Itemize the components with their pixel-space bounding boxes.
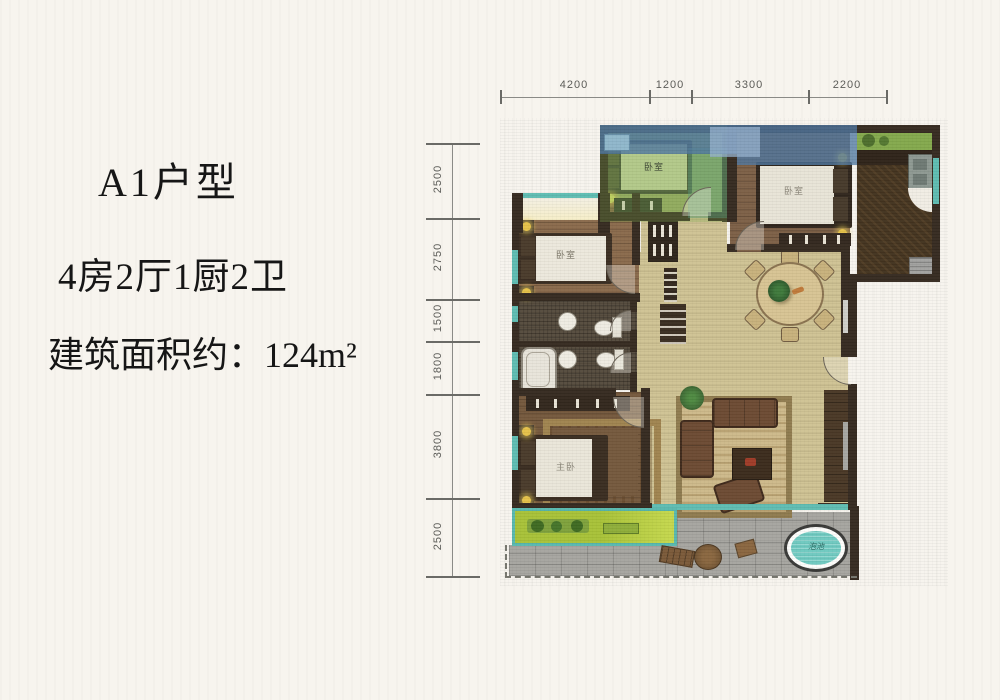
floorplan-page: A1户型 4房2厅1厨2卫 建筑面积约：124m² 4200 1200 3300…: [0, 0, 1000, 700]
sofa-chaise: [680, 420, 714, 478]
dresser-knob: [536, 399, 539, 408]
kitchen-plant: [879, 136, 889, 146]
hanger: [669, 244, 672, 256]
room-label-bedroom-top: 卧室: [644, 160, 664, 173]
dining-chair: [781, 327, 799, 342]
shrub: [531, 520, 544, 532]
bay-window: [522, 197, 600, 220]
bed-pillow: [521, 470, 535, 494]
wall: [630, 372, 637, 392]
hot-tub-label: 泡池: [787, 541, 845, 552]
floor-plan: 泡池 卧室 卧室 卧室 主卧: [0, 0, 1000, 700]
dresser-knob: [596, 399, 599, 408]
sink-basin: [913, 159, 927, 170]
linen-cabinet: [660, 304, 686, 344]
wall: [517, 341, 637, 347]
window: [512, 352, 518, 380]
wall: [850, 506, 859, 580]
terrace-dashed-edge: [505, 545, 507, 578]
room-label-bedroom-master: 主卧: [556, 460, 576, 473]
room-label-bedroom-right: 卧室: [784, 184, 804, 197]
sink: [558, 350, 577, 369]
wall-niche: [843, 300, 848, 333]
hanger: [661, 244, 664, 256]
floor-plant: [680, 386, 704, 410]
hot-tub: 泡池: [784, 524, 848, 572]
shrub: [551, 521, 562, 532]
sink: [558, 312, 577, 331]
hanger: [661, 225, 664, 237]
window: [512, 250, 518, 284]
bed-pillow: [833, 169, 848, 193]
terrace-floor: [509, 545, 677, 576]
bed-pillow: [521, 237, 535, 256]
hanger: [669, 225, 672, 237]
dresser-knob: [789, 235, 792, 244]
hall-cabinet: [664, 268, 677, 302]
table-plant: [768, 280, 790, 302]
wall: [761, 244, 850, 252]
bed-pillow: [521, 260, 535, 279]
hanger: [653, 225, 656, 237]
window: [512, 436, 518, 470]
room-label-bedroom-left: 卧室: [556, 248, 576, 261]
window: [512, 306, 518, 322]
window-block: [604, 134, 630, 151]
bed-pillow: [521, 441, 535, 465]
hanger: [653, 244, 656, 256]
dresser-knob: [576, 399, 579, 408]
kitchen-plant: [862, 134, 875, 147]
wall: [512, 293, 640, 301]
terrace-dashed-edge: [505, 576, 857, 578]
terrace-table: [694, 544, 722, 570]
wall: [512, 193, 523, 233]
sofa: [712, 398, 778, 428]
dining-table: [756, 262, 824, 326]
dresser-knob: [837, 235, 840, 244]
shrub: [571, 520, 583, 532]
window: [933, 158, 939, 204]
dresser-knob: [805, 235, 808, 244]
sink-basin: [913, 174, 927, 185]
dresser-knob: [554, 399, 557, 408]
kitchen-sink: [908, 154, 934, 190]
bathtub-inner: [526, 352, 550, 387]
sliding-door: [652, 504, 848, 510]
garden-balcony: [512, 508, 677, 546]
blue-tint-light: [710, 127, 760, 157]
wall: [512, 388, 616, 396]
window: [523, 193, 598, 198]
lamp: [522, 222, 531, 231]
lamp: [522, 427, 531, 436]
coffee-table-decor: [745, 458, 756, 466]
wall: [848, 274, 940, 282]
wardrobe: [648, 220, 678, 262]
dresser-knob: [823, 235, 826, 244]
bed-pillow: [833, 197, 848, 221]
garden-bench: [603, 523, 639, 534]
wall: [848, 384, 857, 506]
